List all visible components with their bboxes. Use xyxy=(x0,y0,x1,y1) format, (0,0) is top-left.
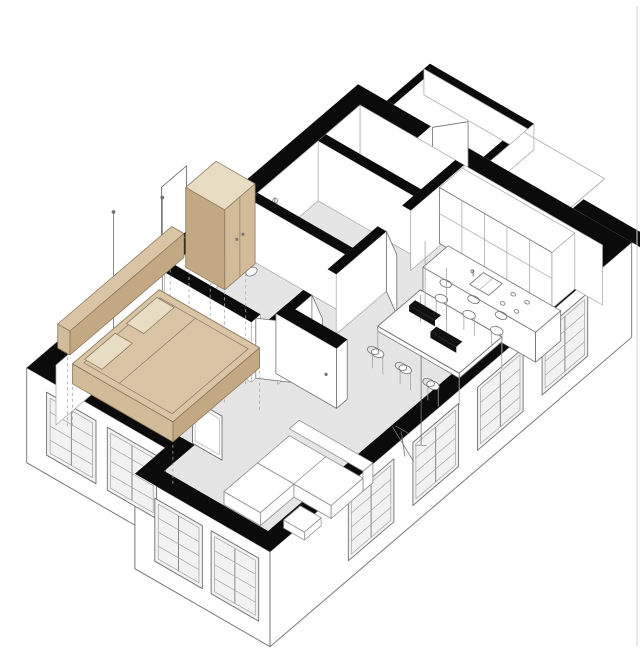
axonometric-floor-plan xyxy=(0,0,640,652)
wardrobe-handle xyxy=(242,233,244,235)
neighbor-wall-line xyxy=(524,132,605,179)
door-handle xyxy=(325,373,327,375)
wardrobe-handle xyxy=(236,238,238,240)
partition-end xyxy=(337,339,348,408)
floor-plan-illustration xyxy=(0,0,640,652)
